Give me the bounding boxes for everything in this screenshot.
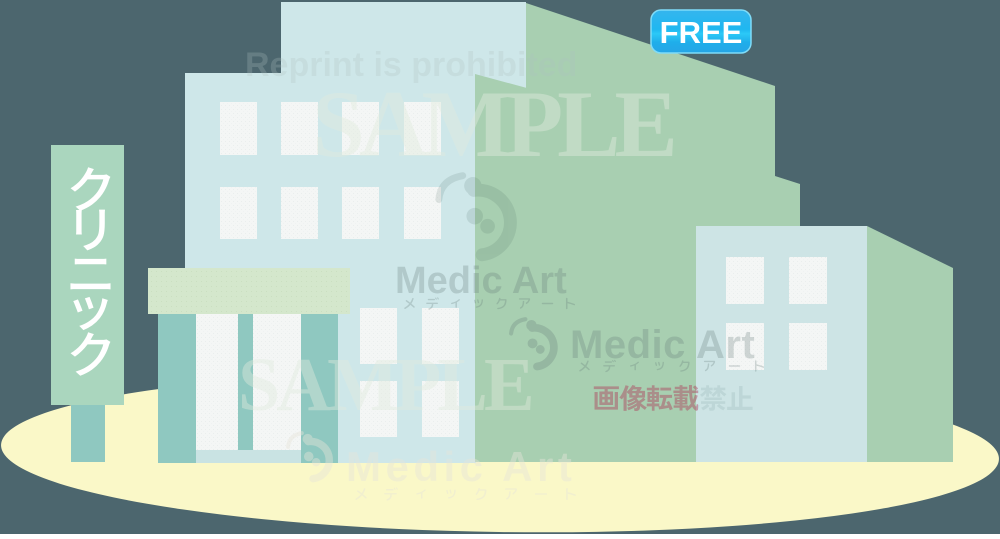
svg-text:SAMPLE: SAMPLE	[238, 343, 531, 427]
svg-text:SAMPLE: SAMPLE	[312, 71, 674, 177]
svg-text:FREE: FREE	[660, 15, 743, 50]
svg-text:Medic Art: Medic Art	[570, 323, 755, 367]
svg-text:Medic Art: Medic Art	[346, 443, 576, 490]
svg-text:Medic Art: Medic Art	[395, 260, 567, 302]
